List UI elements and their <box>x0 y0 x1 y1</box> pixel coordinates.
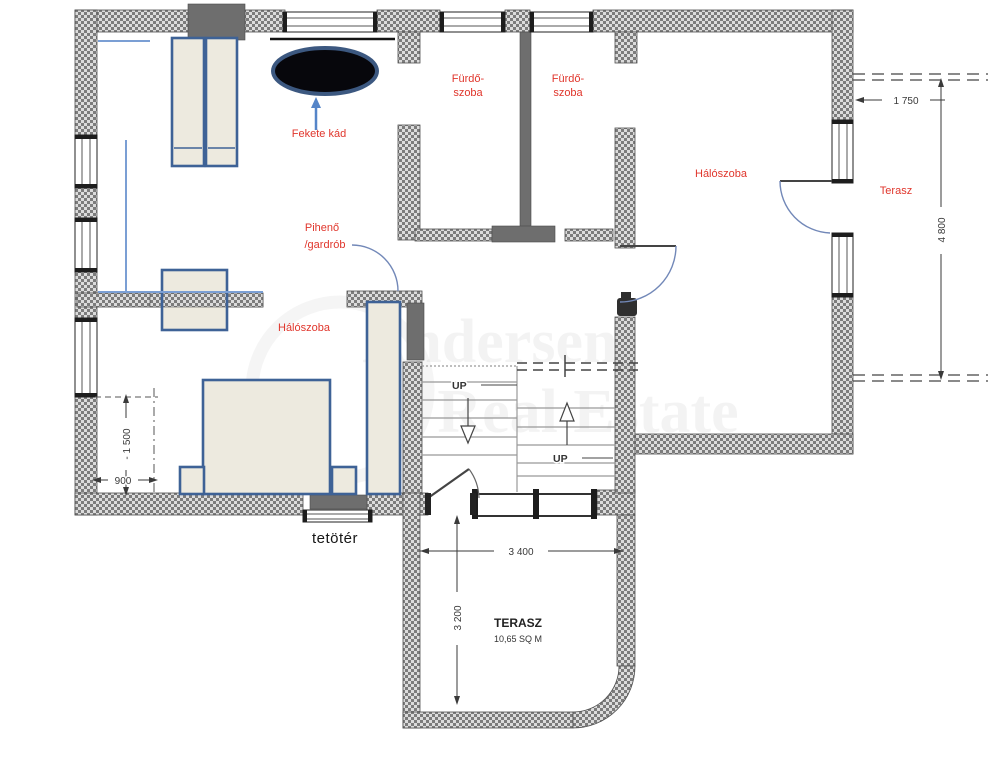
wall-terrace-right <box>617 515 635 666</box>
wall-top-2 <box>245 10 285 32</box>
dim-terrace-length: 4 800 <box>937 217 948 242</box>
label-lounge-line2: /gardrób <box>305 239 346 251</box>
wall-bath-bottom-2 <box>565 229 613 241</box>
wall-bottom-1 <box>75 493 303 515</box>
window-right-1 <box>832 120 853 183</box>
dim-lower-terrace-depth: 3 200 <box>453 605 464 630</box>
dim-knee-height: - 1 500 <box>122 428 133 460</box>
window-bottom <box>303 510 372 522</box>
twin-bed-right-panel <box>206 38 237 166</box>
twin-bed-left-panel <box>172 38 204 166</box>
wall-pier-left-bath <box>398 32 420 63</box>
nightstand-right <box>332 467 356 494</box>
wall-through-wardrobe <box>150 293 263 307</box>
label-bedroom-main: Hálószoba <box>695 168 748 180</box>
label-terrace-upper: Terasz <box>880 185 912 197</box>
dim-terrace-width: 1 750 <box>893 96 918 107</box>
bathroom-divider-wall <box>520 32 531 238</box>
door-jamb-right <box>470 493 476 515</box>
label-bedroom-left: Hálószoba <box>278 322 331 334</box>
floor-plan-svg: Andersen Real Estate <box>0 0 1000 764</box>
wall-bedroom-bottom <box>633 434 853 454</box>
nightstand-left <box>180 467 204 494</box>
label-lounge-line1: Pihenő <box>305 222 339 234</box>
window-top-1 <box>283 12 377 32</box>
dim-knee-width: 900 <box>115 476 132 487</box>
black-bathtub <box>273 48 377 94</box>
label-bathroom2-line1: Fürdő- <box>552 73 585 85</box>
wall-top-5 <box>593 10 853 32</box>
bed-lower-bedroom <box>203 380 330 494</box>
label-bathroom1-line2: szoba <box>453 87 483 99</box>
wall-stair-bottom-right <box>597 490 635 515</box>
window-left-1 <box>75 135 97 188</box>
up-label-right: UP <box>553 453 568 465</box>
wall-stair-left <box>403 362 422 493</box>
door-hinge-top <box>621 292 631 299</box>
window-right-2 <box>832 233 853 297</box>
wall-bedroom-left <box>615 128 635 248</box>
label-black-tub: Fekete kád <box>292 128 346 140</box>
window-top-3 <box>530 12 593 32</box>
wall-top-4 <box>505 10 530 32</box>
label-bathroom1-line1: Fürdő- <box>452 73 485 85</box>
wall-stair-right <box>615 317 635 493</box>
wall-right-2 <box>832 297 853 454</box>
window-left-2 <box>75 218 97 272</box>
label-attic: tetötér <box>312 530 358 547</box>
dim-lower-terrace-width: 3 400 <box>508 547 533 558</box>
window-left-3 <box>75 318 97 397</box>
wall-left-2 <box>75 188 97 218</box>
wall-right-1 <box>832 10 853 120</box>
wall-pier-bedroom <box>615 32 637 63</box>
label-terrace-lower-area: 10,65 SQ M <box>494 634 542 644</box>
label-terrace-lower-title: TERASZ <box>494 616 542 630</box>
wall-bath1-left <box>398 125 420 240</box>
label-bathroom2-line2: szoba <box>553 87 583 99</box>
wall-bath-bottom-dark <box>492 226 555 242</box>
door-panel-bottom <box>310 495 367 509</box>
wardrobe-tall <box>367 302 400 494</box>
wall-terrace-left <box>403 493 420 728</box>
wall-top-3 <box>377 10 440 32</box>
door-leaf-lounge <box>407 303 424 360</box>
door-jamb-left <box>425 493 431 515</box>
floor-plan-page: Andersen Real Estate <box>0 0 1000 764</box>
chimney-block <box>188 4 245 40</box>
window-top-2 <box>440 12 505 32</box>
up-label-left: UP <box>452 380 467 392</box>
wall-left-1 <box>75 10 97 135</box>
wall-terrace-bottom <box>403 712 573 728</box>
wall-bath-bottom-1 <box>415 229 492 241</box>
